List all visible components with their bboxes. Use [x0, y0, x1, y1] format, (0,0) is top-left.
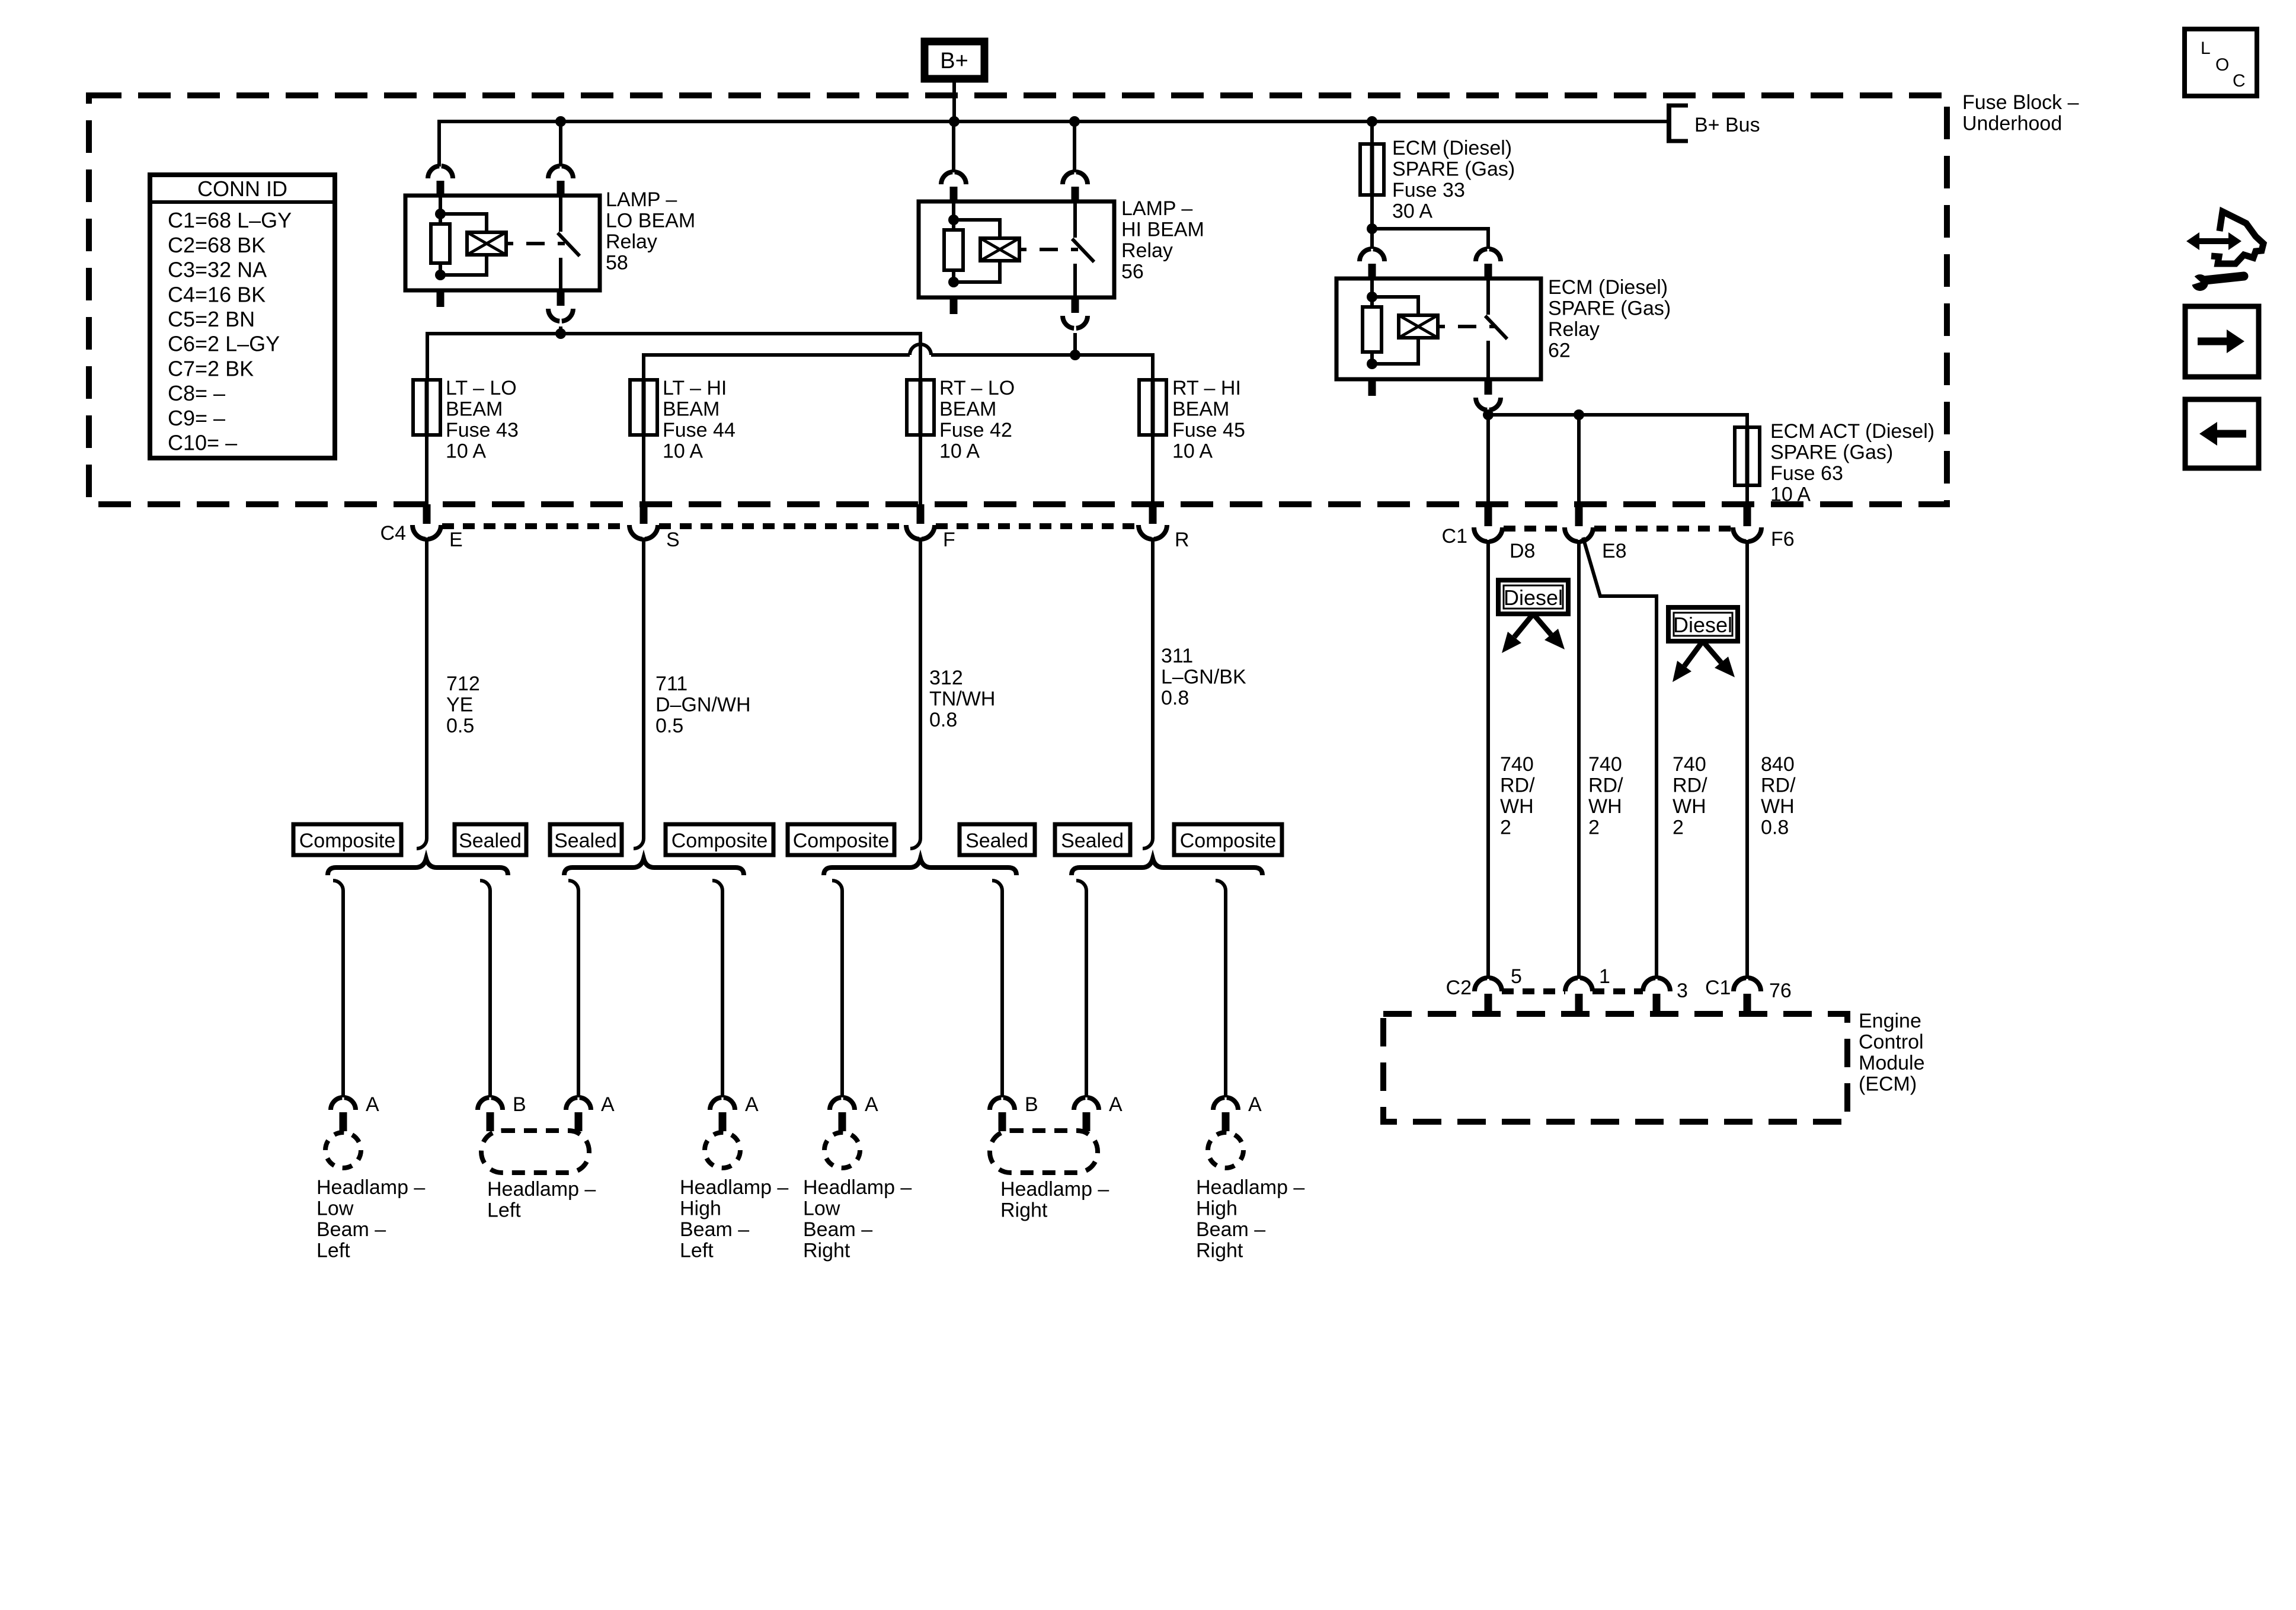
svg-text:A: A: [745, 1093, 759, 1116]
svg-text:WH: WH: [1673, 795, 1706, 818]
svg-text:A: A: [1109, 1093, 1123, 1116]
svg-text:HI BEAM: HI BEAM: [1121, 218, 1204, 241]
svg-text:Sealed: Sealed: [1061, 830, 1124, 852]
svg-text:0.8: 0.8: [929, 709, 957, 731]
svg-text:C6=2 L–GY: C6=2 L–GY: [168, 332, 280, 356]
svg-text:L–GN/BK: L–GN/BK: [1161, 665, 1246, 688]
svg-text:76: 76: [1769, 980, 1792, 1002]
svg-text:D–GN/WH: D–GN/WH: [655, 693, 751, 716]
svg-text:Beam –: Beam –: [680, 1218, 749, 1241]
svg-text:Beam –: Beam –: [803, 1218, 872, 1241]
svg-text:A: A: [865, 1093, 878, 1116]
svg-text:Fuse 44: Fuse 44: [663, 419, 736, 441]
svg-text:SPARE (Gas): SPARE (Gas): [1392, 158, 1515, 180]
svg-text:LO BEAM: LO BEAM: [606, 209, 695, 232]
svg-text:62: 62: [1548, 339, 1571, 361]
svg-text:D8: D8: [1510, 540, 1535, 562]
svg-text:WH: WH: [1588, 795, 1622, 818]
svg-text:Low: Low: [803, 1197, 840, 1219]
svg-text:311: 311: [1161, 645, 1193, 667]
svg-text:E: E: [449, 529, 463, 551]
svg-text:Headlamp –: Headlamp –: [316, 1176, 425, 1199]
svg-text:0.5: 0.5: [655, 715, 683, 737]
svg-text:Control: Control: [1859, 1030, 1924, 1053]
svg-text:2: 2: [1500, 816, 1511, 838]
svg-text:Right: Right: [1000, 1199, 1048, 1221]
svg-text:0.8: 0.8: [1761, 816, 1789, 838]
svg-text:BEAM: BEAM: [446, 398, 503, 420]
svg-text:Fuse 45: Fuse 45: [1172, 419, 1245, 441]
svg-text:R: R: [1175, 529, 1189, 551]
svg-text:30 A: 30 A: [1392, 200, 1432, 222]
svg-text:C5=2 BN: C5=2 BN: [168, 307, 255, 331]
svg-text:C8= –: C8= –: [168, 381, 225, 405]
svg-text:SPARE (Gas): SPARE (Gas): [1770, 441, 1893, 463]
svg-text:1: 1: [1599, 965, 1610, 988]
svg-text:B: B: [513, 1093, 526, 1116]
svg-text:C9= –: C9= –: [168, 406, 225, 430]
svg-text:Beam –: Beam –: [1196, 1218, 1265, 1241]
svg-text:YE: YE: [446, 693, 473, 716]
svg-text:Headlamp –: Headlamp –: [803, 1176, 912, 1199]
svg-text:Module: Module: [1859, 1052, 1925, 1074]
svg-text:Headlamp –: Headlamp –: [680, 1176, 788, 1199]
svg-text:SPARE (Gas): SPARE (Gas): [1548, 297, 1671, 319]
svg-text:A: A: [601, 1093, 615, 1116]
svg-text:RD/: RD/: [1500, 774, 1535, 796]
svg-text:E8: E8: [1602, 540, 1627, 562]
svg-text:Fuse 42: Fuse 42: [939, 419, 1012, 441]
svg-text:C2: C2: [1446, 977, 1472, 999]
svg-text:Diesel: Diesel: [1673, 613, 1732, 637]
svg-text:TN/WH: TN/WH: [929, 687, 995, 710]
svg-text:Low: Low: [316, 1197, 354, 1219]
svg-text:Fuse 33: Fuse 33: [1392, 179, 1465, 201]
svg-text:C4=16 BK: C4=16 BK: [168, 282, 266, 306]
svg-text:RD/: RD/: [1588, 774, 1623, 796]
svg-text:Composite: Composite: [299, 830, 396, 852]
svg-text:F6: F6: [1771, 528, 1795, 550]
svg-text:740: 740: [1588, 753, 1622, 776]
svg-text:S: S: [666, 529, 680, 551]
svg-text:F: F: [943, 529, 955, 551]
svg-text:312: 312: [929, 667, 963, 689]
svg-text:Beam –: Beam –: [316, 1218, 386, 1241]
svg-text:Headlamp –: Headlamp –: [487, 1178, 596, 1201]
svg-text:Fuse Block –: Fuse Block –: [1962, 91, 2079, 114]
svg-text:Fuse 43: Fuse 43: [446, 419, 519, 441]
svg-text:Diesel: Diesel: [1504, 585, 1563, 610]
svg-text:High: High: [1196, 1197, 1237, 1219]
svg-text:10 A: 10 A: [663, 440, 703, 462]
svg-text:Sealed: Sealed: [554, 830, 617, 852]
svg-text:ECM (Diesel): ECM (Diesel): [1392, 137, 1512, 159]
svg-text:Headlamp –: Headlamp –: [1196, 1176, 1304, 1199]
svg-text:Fuse 63: Fuse 63: [1770, 462, 1843, 485]
svg-text:WH: WH: [1761, 795, 1795, 818]
svg-text:B+ Bus: B+ Bus: [1694, 114, 1760, 136]
svg-text:Left: Left: [487, 1199, 521, 1221]
svg-text:840: 840: [1761, 753, 1795, 776]
svg-text:High: High: [680, 1197, 721, 1219]
svg-text:10 A: 10 A: [939, 440, 980, 462]
svg-text:Underhood: Underhood: [1962, 112, 2062, 135]
svg-text:A: A: [1248, 1093, 1262, 1116]
svg-text:B: B: [1025, 1093, 1038, 1116]
svg-text:Engine: Engine: [1859, 1010, 1921, 1032]
svg-text:ECM (Diesel): ECM (Diesel): [1548, 276, 1668, 299]
svg-text:Right: Right: [803, 1239, 850, 1262]
svg-text:BEAM: BEAM: [1172, 398, 1229, 420]
svg-text:56: 56: [1121, 260, 1144, 283]
svg-text:C3=32 NA: C3=32 NA: [168, 258, 267, 282]
svg-text:C1: C1: [1705, 977, 1731, 999]
svg-text:RT – HI: RT – HI: [1172, 377, 1241, 399]
svg-text:Left: Left: [680, 1239, 714, 1262]
svg-text:3: 3: [1677, 980, 1688, 1002]
svg-text:LT – HI: LT – HI: [663, 377, 727, 399]
svg-text:O: O: [2215, 55, 2229, 75]
svg-text:Relay: Relay: [606, 231, 657, 253]
svg-text:RT – LO: RT – LO: [939, 377, 1015, 399]
svg-text:Sealed: Sealed: [965, 830, 1028, 852]
svg-text:Sealed: Sealed: [459, 830, 522, 852]
svg-text:RD/: RD/: [1761, 774, 1796, 796]
svg-text:Relay: Relay: [1121, 239, 1173, 262]
svg-text:712: 712: [446, 673, 480, 695]
svg-text:Left: Left: [316, 1239, 350, 1262]
svg-text:WH: WH: [1500, 795, 1534, 818]
svg-text:Composite: Composite: [1180, 830, 1277, 852]
svg-text:RD/: RD/: [1673, 774, 1707, 796]
svg-text:A: A: [366, 1093, 379, 1116]
svg-text:BEAM: BEAM: [939, 398, 996, 420]
svg-text:CONN ID: CONN ID: [197, 177, 287, 201]
svg-text:Right: Right: [1196, 1239, 1243, 1262]
svg-text:Relay: Relay: [1548, 318, 1600, 341]
svg-text:5: 5: [1511, 965, 1522, 988]
svg-text:BEAM: BEAM: [663, 398, 720, 420]
svg-text:LAMP –: LAMP –: [606, 188, 677, 211]
svg-text:ECM ACT (Diesel): ECM ACT (Diesel): [1770, 420, 1934, 443]
svg-text:B+: B+: [940, 49, 968, 73]
svg-text:2: 2: [1673, 816, 1684, 838]
svg-text:C1=68 L–GY: C1=68 L–GY: [168, 208, 292, 232]
svg-text:C2=68 BK: C2=68 BK: [168, 233, 266, 257]
svg-text:LAMP –: LAMP –: [1121, 197, 1192, 220]
svg-text:10 A: 10 A: [446, 440, 486, 462]
svg-text:C7=2 BK: C7=2 BK: [168, 356, 254, 380]
svg-text:10 A: 10 A: [1172, 440, 1213, 462]
svg-text:711: 711: [655, 673, 687, 695]
svg-text:Headlamp –: Headlamp –: [1000, 1178, 1109, 1201]
svg-text:740: 740: [1673, 753, 1706, 776]
svg-text:LT – LO: LT – LO: [446, 377, 517, 399]
svg-text:740: 740: [1500, 753, 1534, 776]
svg-text:10 A: 10 A: [1770, 483, 1811, 505]
svg-text:C1: C1: [1442, 525, 1467, 548]
svg-text:2: 2: [1588, 816, 1600, 838]
svg-text:C4: C4: [380, 522, 406, 545]
svg-text:58: 58: [606, 251, 628, 274]
svg-text:C: C: [2233, 71, 2246, 91]
svg-text:L: L: [2201, 39, 2211, 58]
svg-text:(ECM): (ECM): [1859, 1073, 1917, 1095]
svg-text:0.8: 0.8: [1161, 687, 1189, 709]
svg-text:C10= –: C10= –: [168, 431, 237, 455]
svg-text:0.5: 0.5: [446, 715, 474, 737]
svg-text:Composite: Composite: [671, 830, 768, 852]
svg-text:Composite: Composite: [793, 830, 890, 852]
